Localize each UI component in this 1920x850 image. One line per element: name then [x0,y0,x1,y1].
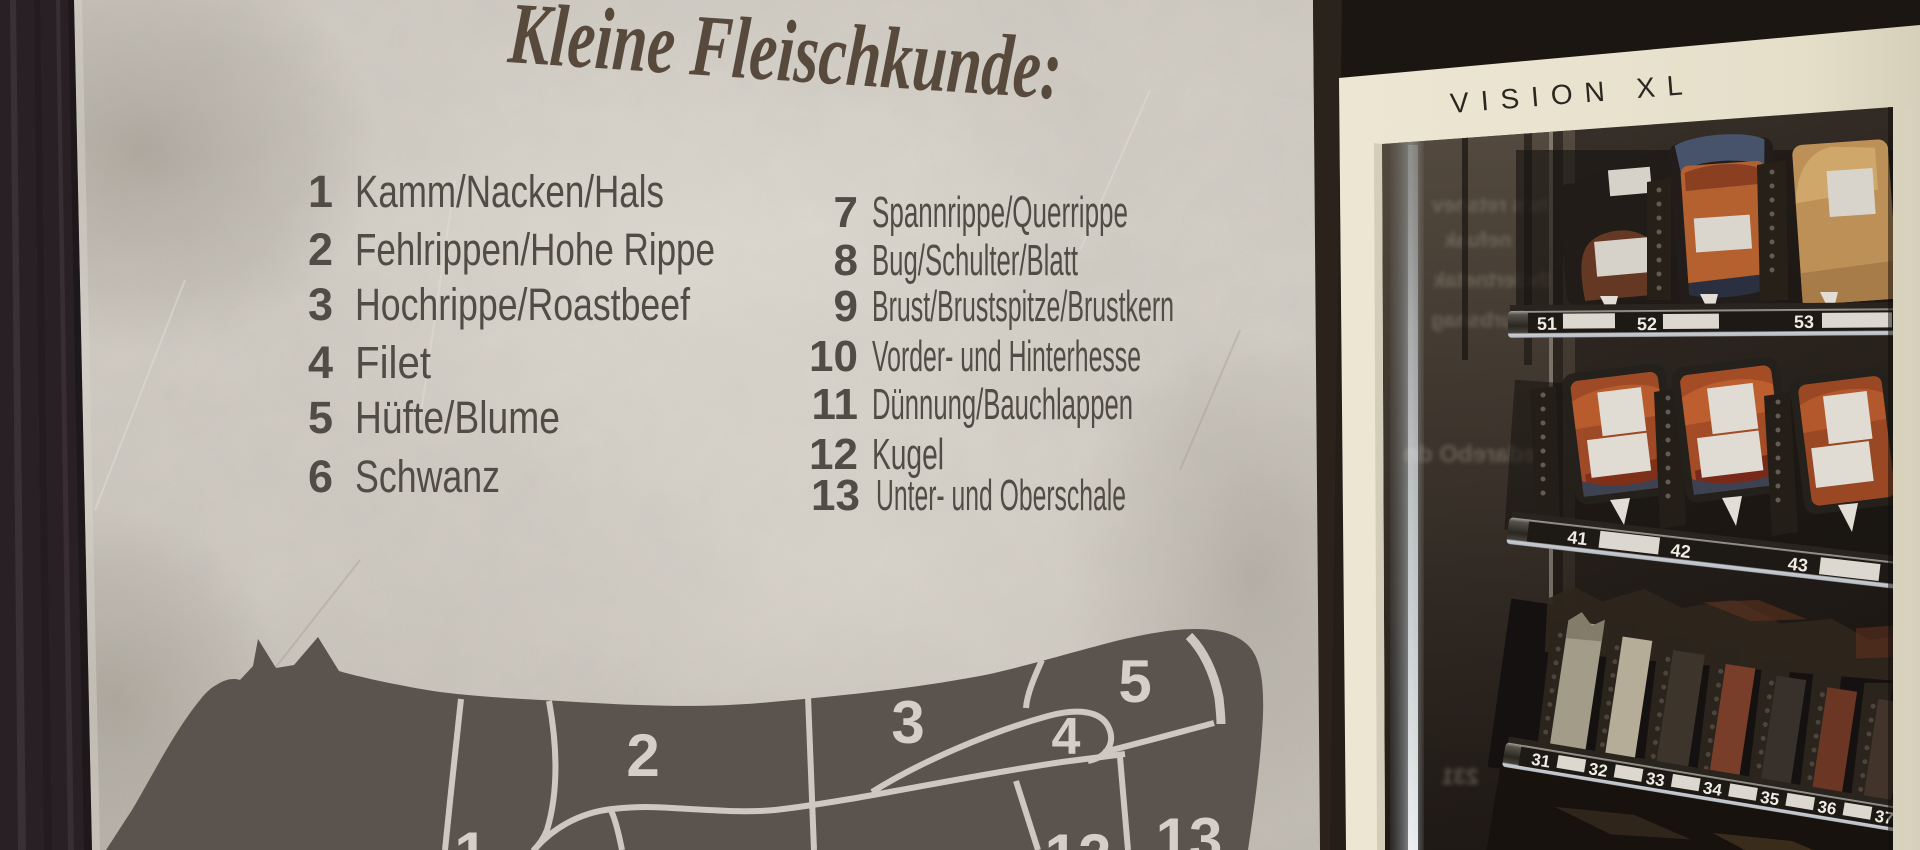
svg-text:33: 33 [1644,769,1666,791]
svg-text:Unter- und Oberschale: Unter- und Oberschale [876,471,1126,520]
svg-text:36: 36 [1816,797,1838,819]
svg-text:231: 231 [1442,764,1479,789]
svg-text:7: 7 [834,188,858,237]
svg-text:5: 5 [308,392,333,443]
svg-text:52: 52 [1637,314,1657,334]
svg-text:10: 10 [809,332,858,381]
svg-text:3: 3 [891,689,924,756]
svg-text:1: 1 [308,166,333,217]
svg-text:Bug/Schulter/Blatt: Bug/Schulter/Blatt [872,236,1078,285]
svg-text:Schwanz: Schwanz [355,451,500,502]
svg-text:Fehlrippen/Hohe Rippe: Fehlrippen/Hohe Rippe [355,224,715,275]
svg-text:42: 42 [1670,540,1692,562]
svg-text:4: 4 [308,337,333,388]
svg-text:35: 35 [1759,788,1781,810]
svg-text:3: 3 [308,279,333,330]
svg-text:13: 13 [1156,806,1223,850]
svg-text:2: 2 [308,224,333,275]
svg-text:4: 4 [1052,708,1081,766]
svg-text:8: 8 [834,236,858,285]
svg-text:13: 13 [811,471,860,520]
svg-text:32: 32 [1587,759,1609,781]
svg-text:53: 53 [1794,312,1814,332]
svg-text:Brust/Brustspitze/Brustkern: Brust/Brustspitze/Brustkern [872,282,1174,331]
svg-text:Vorder- und Hinterhesse: Vorder- und Hinterhesse [872,332,1141,381]
svg-text:2: 2 [626,722,659,789]
svg-text:11: 11 [811,380,858,429]
svg-text:Hochrippe/Roastbeef: Hochrippe/Roastbeef [355,279,690,330]
svg-text:Spannrippe/Querrippe: Spannrippe/Querrippe [872,188,1128,237]
svg-text:nefuak: nefuak [1444,229,1512,252]
svg-text:41: 41 [1566,527,1588,549]
svg-text:Kamm/Nacken/Hals: Kamm/Nacken/Hals [355,166,664,217]
svg-text:Dünnung/Bauchlappen: Dünnung/Bauchlappen [872,380,1133,429]
svg-text:1: 1 [454,820,487,850]
svg-text:43: 43 [1787,554,1809,576]
svg-text:Hüfte/Blume: Hüfte/Blume [355,392,560,443]
svg-text:12: 12 [1045,822,1112,850]
svg-text:6: 6 [308,451,333,502]
svg-text:34: 34 [1702,778,1724,800]
svg-text:51: 51 [1537,314,1557,334]
svg-text:31: 31 [1530,750,1552,772]
svg-text:5: 5 [1118,648,1151,715]
svg-text:Filet: Filet [355,337,431,388]
svg-text:9: 9 [834,282,858,331]
